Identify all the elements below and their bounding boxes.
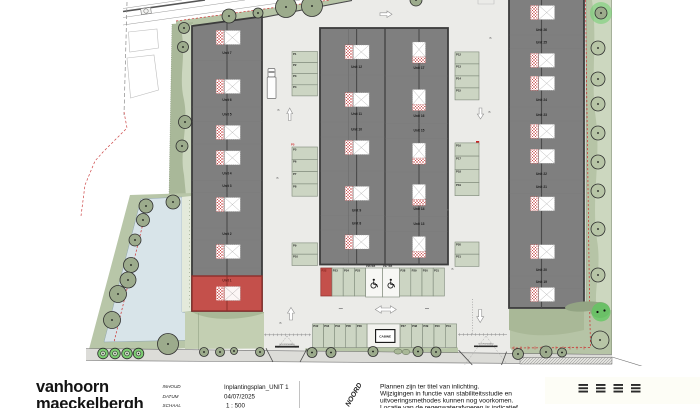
svg-text:Unit 26: Unit 26 bbox=[536, 28, 547, 32]
svg-text:P5: P5 bbox=[293, 147, 297, 151]
svg-text:Unit 15: Unit 15 bbox=[414, 129, 425, 133]
svg-text:P40: P40 bbox=[435, 324, 440, 328]
svg-text:uitvoeringsmethodes kunnen nog: uitvoeringsmethodes kunnen nog voorkomen… bbox=[380, 398, 514, 405]
svg-text:Unit 13: Unit 13 bbox=[414, 222, 425, 226]
svg-text:P22: P22 bbox=[322, 269, 327, 273]
svg-text:Unit 3: Unit 3 bbox=[222, 184, 231, 188]
svg-text:P20: P20 bbox=[456, 242, 461, 246]
svg-text:P33: P33 bbox=[324, 324, 329, 328]
svg-text:HOOFDINGANG: HOOFDINGANG bbox=[279, 343, 295, 346]
svg-text:Unit 10: Unit 10 bbox=[351, 127, 362, 131]
svg-text:Wijzigingen in functie van sta: Wijzigingen in functie van stabiliteitss… bbox=[380, 391, 512, 398]
svg-text:B: B bbox=[489, 110, 491, 114]
svg-text:P24: P24 bbox=[344, 269, 349, 273]
svg-text:B: B bbox=[277, 176, 279, 180]
svg-text:P18: P18 bbox=[456, 170, 461, 174]
svg-text:P10: P10 bbox=[293, 255, 298, 259]
svg-text:vanhoorn: vanhoorn bbox=[36, 378, 109, 396]
svg-text:P9: P9 bbox=[293, 243, 297, 247]
svg-text:Unit 20: Unit 20 bbox=[536, 268, 547, 272]
svg-text:Unit 22: Unit 22 bbox=[536, 172, 547, 176]
svg-text:DATUM: DATUM bbox=[163, 394, 179, 399]
svg-text:P13: P13 bbox=[456, 64, 461, 68]
svg-text:P23: P23 bbox=[333, 269, 338, 273]
svg-text:Unit 24: Unit 24 bbox=[536, 98, 547, 102]
svg-text:INHOUD: INHOUD bbox=[163, 384, 182, 389]
svg-text:P28: P28 bbox=[400, 269, 405, 273]
svg-text:Unit 11: Unit 11 bbox=[351, 112, 362, 116]
svg-text:Unit 5: Unit 5 bbox=[222, 113, 231, 117]
svg-text:P39: P39 bbox=[423, 324, 428, 328]
svg-text:P14: P14 bbox=[456, 76, 461, 80]
svg-text:P17: P17 bbox=[456, 157, 461, 161]
svg-text:Unit 14: Unit 14 bbox=[414, 207, 425, 211]
svg-text:P26 W5: P26 W5 bbox=[366, 264, 376, 268]
svg-text:P25: P25 bbox=[355, 269, 360, 273]
svg-text:P31: P31 bbox=[434, 269, 439, 273]
svg-text:maeckelbergh: maeckelbergh bbox=[36, 395, 144, 408]
svg-text:Locatie van de regenwaterafvoe: Locatie van de regenwaterafvoeren is ind… bbox=[380, 405, 518, 409]
svg-text:P21: P21 bbox=[456, 255, 461, 259]
svg-text:P27 W5: P27 W5 bbox=[383, 264, 393, 268]
svg-text:P30: P30 bbox=[423, 269, 428, 273]
svg-text:P32: P32 bbox=[313, 324, 318, 328]
svg-text:P16: P16 bbox=[456, 143, 461, 147]
svg-text:P35: P35 bbox=[346, 324, 351, 328]
svg-text:Unit 7: Unit 7 bbox=[222, 51, 231, 55]
svg-text:04/07/2025: 04/07/2025 bbox=[224, 394, 256, 401]
svg-text:Unit 21: Unit 21 bbox=[536, 185, 547, 189]
svg-text:Unit 17: Unit 17 bbox=[414, 66, 425, 70]
svg-text:P38: P38 bbox=[412, 324, 417, 328]
svg-text:P29: P29 bbox=[412, 269, 417, 273]
svg-text:Unit 23: Unit 23 bbox=[536, 113, 547, 117]
svg-text:Unit 1: Unit 1 bbox=[222, 279, 231, 283]
svg-text:B: B bbox=[452, 267, 454, 271]
svg-text:1 : 500: 1 : 500 bbox=[226, 403, 245, 409]
svg-text:SCHAAL: SCHAAL bbox=[163, 403, 182, 408]
svg-text:B: B bbox=[278, 108, 280, 112]
svg-text:P37: P37 bbox=[401, 324, 406, 328]
svg-text:P6: P6 bbox=[293, 160, 297, 164]
svg-text:P36: P36 bbox=[357, 324, 362, 328]
svg-text:P4: P4 bbox=[293, 85, 297, 89]
svg-text:Plannen zijn ter titel van inl: Plannen zijn ter titel van inlichting. bbox=[380, 384, 479, 391]
svg-text:Inplantingsplan_UNIT 1: Inplantingsplan_UNIT 1 bbox=[224, 384, 289, 391]
svg-text:CABINE: CABINE bbox=[379, 335, 391, 339]
svg-text:P34: P34 bbox=[335, 324, 340, 328]
svg-text:Unit 25: Unit 25 bbox=[536, 41, 547, 45]
svg-text:Unit 19: Unit 19 bbox=[536, 280, 547, 284]
svg-text:Unit 4: Unit 4 bbox=[222, 172, 231, 176]
svg-text:P8: P8 bbox=[293, 184, 297, 188]
svg-text:P15: P15 bbox=[456, 88, 461, 92]
svg-text:Unit 16: Unit 16 bbox=[414, 114, 425, 118]
svg-text:P19: P19 bbox=[456, 183, 461, 187]
svg-text:B: B bbox=[490, 36, 492, 40]
svg-text:Unit 9: Unit 9 bbox=[352, 209, 361, 213]
svg-text:P5: P5 bbox=[291, 143, 295, 147]
svg-text:P7: P7 bbox=[293, 172, 297, 176]
svg-text:P3: P3 bbox=[293, 74, 297, 78]
svg-text:P41: P41 bbox=[446, 324, 451, 328]
svg-text:Unit 12: Unit 12 bbox=[351, 65, 362, 69]
svg-text:Unit 6: Unit 6 bbox=[222, 98, 231, 102]
svg-text:P1: P1 bbox=[293, 52, 297, 56]
svg-text:P2: P2 bbox=[293, 63, 297, 67]
svg-text:P12: P12 bbox=[456, 52, 461, 56]
svg-text:Unit 8: Unit 8 bbox=[352, 222, 361, 226]
svg-text:B: B bbox=[280, 321, 282, 325]
svg-text:B: B bbox=[447, 208, 449, 212]
svg-text:Unit 2: Unit 2 bbox=[222, 232, 231, 236]
